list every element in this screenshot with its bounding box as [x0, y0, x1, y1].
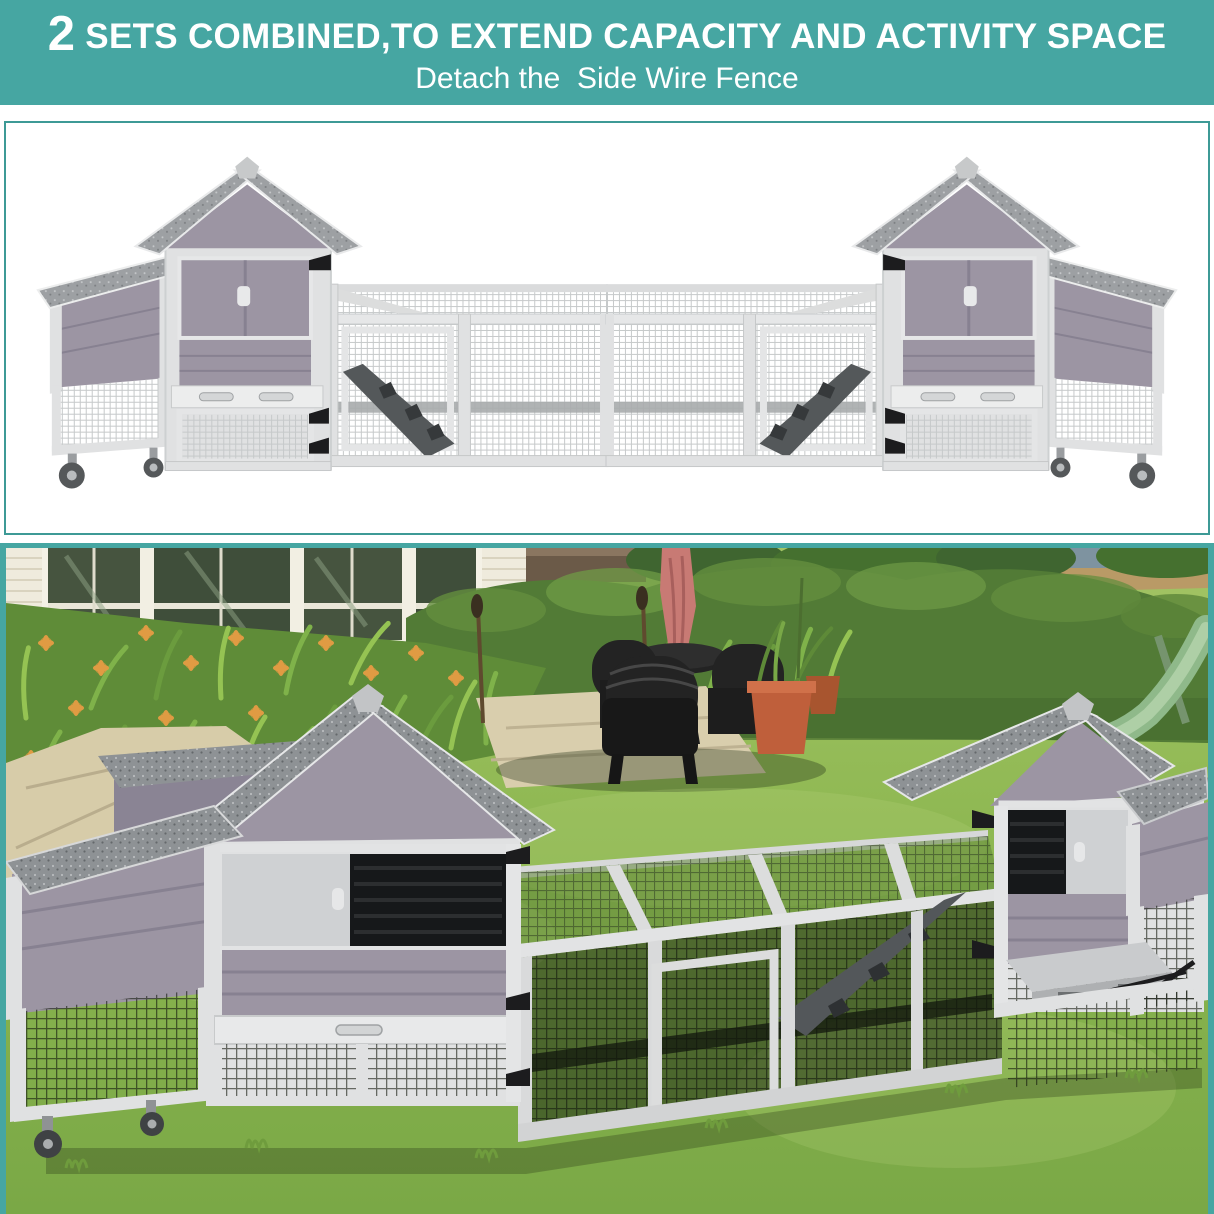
caster-wheel-render — [59, 448, 164, 489]
left-coop-render — [38, 157, 608, 489]
sliding-door-photo — [222, 854, 350, 946]
backyard-photo — [6, 548, 1208, 1214]
white-gap-middle — [0, 535, 1214, 543]
product-render-panel — [4, 121, 1210, 535]
banner-subtitle: Detach the Side Wire Fence — [415, 61, 799, 97]
right-coop-render — [606, 157, 1176, 489]
banner-title-text: SETS COMBINED,TO EXTEND CAPACITY AND ACT… — [75, 17, 1166, 56]
photo-frame — [0, 543, 1214, 1214]
door-latch-render — [237, 286, 250, 306]
coop-tower-render — [136, 157, 361, 471]
banner-title-number: 2 — [48, 7, 76, 61]
headline-banner: 2 SETS COMBINED,TO EXTEND CAPACITY AND A… — [0, 0, 1214, 105]
banner-title: 2 SETS COMBINED,TO EXTEND CAPACITY AND A… — [48, 11, 1167, 60]
pullout-tray-render — [171, 386, 322, 408]
product-render-illustration — [8, 126, 1206, 530]
white-gap-top — [0, 105, 1214, 121]
run-render — [325, 284, 608, 466]
